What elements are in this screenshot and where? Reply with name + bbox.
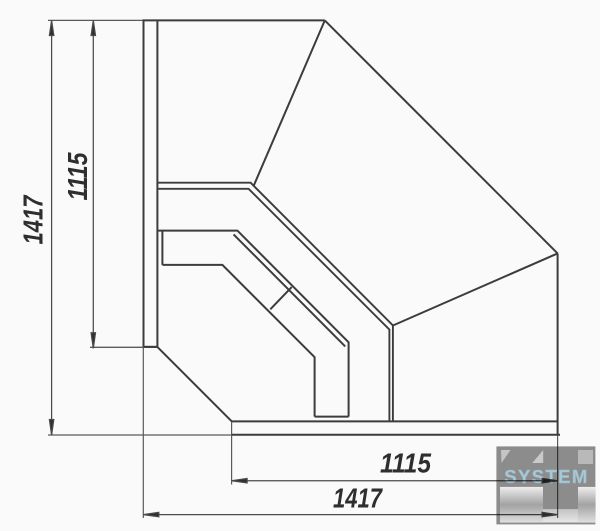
svg-text:SYSTEM: SYSTEM — [504, 466, 588, 487]
svg-text:1115: 1115 — [380, 448, 431, 479]
svg-text:1115: 1115 — [62, 152, 93, 200]
svg-text:1417: 1417 — [18, 194, 49, 244]
svg-text:1417: 1417 — [333, 483, 383, 514]
